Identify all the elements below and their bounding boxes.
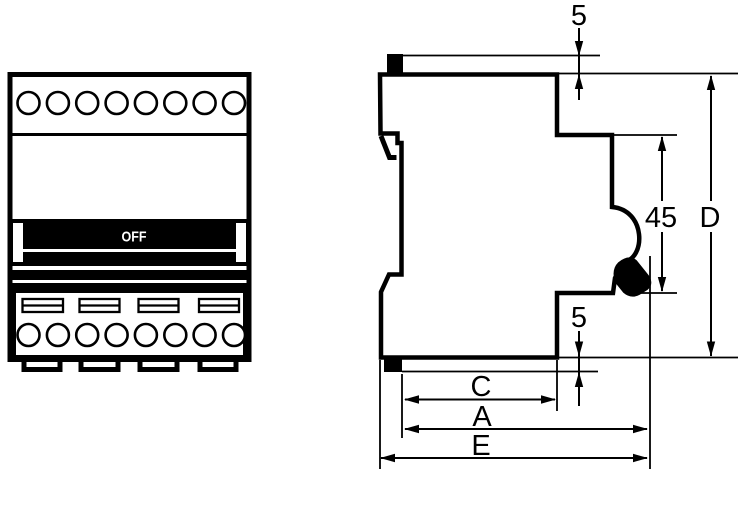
arrowhead-top5-up bbox=[575, 74, 583, 89]
arrowhead-top5-down bbox=[575, 41, 583, 56]
mounting-foot bbox=[140, 360, 177, 370]
screw-hole bbox=[76, 324, 98, 346]
dim-label-top-5: 5 bbox=[571, 0, 587, 32]
screw-hole bbox=[18, 92, 40, 114]
arrowhead-45-top bbox=[658, 136, 666, 151]
top-clip-block bbox=[387, 54, 403, 74]
arrowhead-bottom5-up bbox=[575, 372, 583, 387]
dim-label-e: E bbox=[471, 430, 490, 462]
screw-hole bbox=[194, 92, 216, 114]
screw-hole bbox=[47, 324, 69, 346]
dim-label-bottom-5: 5 bbox=[571, 302, 587, 334]
side-view: 5 45 D 5 C A E bbox=[380, 0, 738, 469]
arrowhead-a-left bbox=[404, 425, 419, 433]
arrowhead-d-top bbox=[707, 75, 715, 90]
screw-hole bbox=[106, 324, 128, 346]
arrowhead-e-right bbox=[633, 454, 648, 462]
dim-label-c: C bbox=[471, 371, 492, 403]
side-profile-outline bbox=[380, 75, 639, 358]
dim-label-45: 45 bbox=[645, 202, 677, 234]
toggle-side-bar-left bbox=[13, 223, 23, 262]
dim-label-d: D bbox=[700, 202, 721, 234]
din-rail-hook bbox=[381, 136, 397, 158]
screw-hole bbox=[106, 92, 128, 114]
screw-hole bbox=[18, 324, 40, 346]
screw-hole bbox=[76, 92, 98, 114]
bottom-clip-block bbox=[384, 357, 402, 372]
mounting-foot bbox=[24, 360, 60, 370]
switch-state-label: OFF bbox=[122, 229, 147, 246]
screw-hole bbox=[223, 92, 245, 114]
technical-drawing-page: OFF bbox=[0, 0, 745, 516]
screw-hole bbox=[135, 324, 157, 346]
arrowhead-45-bottom bbox=[658, 277, 666, 292]
toggle-side-bar-right bbox=[236, 223, 246, 262]
drawing-svg: OFF bbox=[0, 0, 745, 516]
stripe-upper bbox=[10, 270, 249, 280]
dim-label-a: A bbox=[472, 401, 492, 433]
mounting-foot bbox=[81, 360, 118, 370]
arrowhead-d-bottom bbox=[707, 342, 715, 357]
arrowhead-bottom5-down bbox=[575, 342, 583, 357]
arrowhead-c-left bbox=[404, 395, 419, 403]
screw-hole bbox=[223, 324, 245, 346]
mounting-foot bbox=[200, 360, 236, 370]
screw-hole bbox=[164, 92, 186, 114]
screw-hole bbox=[47, 92, 69, 114]
arrowhead-a-right bbox=[633, 425, 648, 433]
toggle-handle-groove bbox=[23, 249, 236, 252]
arrowhead-e-left bbox=[380, 454, 395, 462]
toggle-handle-tip bbox=[615, 258, 651, 295]
screw-hole bbox=[164, 324, 186, 346]
screw-hole bbox=[194, 324, 216, 346]
arrowhead-c-right bbox=[541, 395, 556, 403]
screw-hole bbox=[135, 92, 157, 114]
front-view: OFF bbox=[10, 75, 249, 370]
